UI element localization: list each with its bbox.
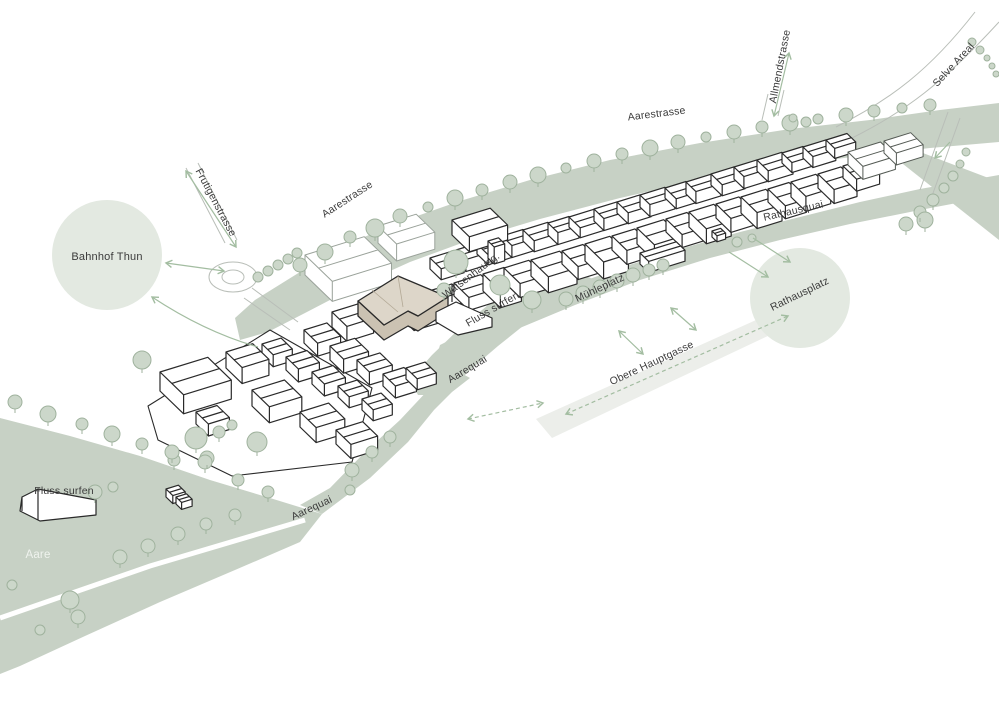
label-aarestrasse-north: Aarestrasse: [627, 105, 686, 124]
tree-icon: [989, 63, 995, 69]
tree-icon: [748, 234, 756, 242]
tree-icon: [113, 550, 127, 564]
tree-icon: [559, 292, 573, 306]
tree-icon: [476, 184, 488, 196]
tree-icon: [626, 268, 640, 282]
tree-icon: [561, 163, 571, 173]
tree-icon: [344, 231, 356, 243]
tree-icon: [789, 114, 797, 122]
tree-icon: [262, 486, 274, 498]
tree-icon: [227, 420, 237, 430]
tree-icon: [104, 426, 120, 442]
tree-icon: [657, 259, 669, 271]
tree-icon: [293, 258, 307, 272]
tree-icon: [7, 580, 17, 590]
tree-icon: [263, 266, 273, 276]
building: [712, 228, 726, 242]
tree-icon: [292, 248, 302, 258]
tree-icon: [393, 209, 407, 223]
tree-icon: [185, 427, 207, 449]
building: [176, 494, 192, 510]
tree-icon: [671, 135, 685, 149]
tree-icon: [523, 291, 541, 309]
tree-icon: [976, 46, 984, 54]
building: [362, 393, 392, 421]
tree-icon: [727, 125, 741, 139]
site-plan-canvas: Bahnhof Thun Frutigenstrasse Aarestrasse…: [0, 0, 999, 703]
tree-icon: [897, 103, 907, 113]
label-bahnhof-thun: Bahnhof Thun: [71, 251, 142, 263]
tree-icon: [384, 431, 396, 443]
tree-icon: [732, 237, 742, 247]
arrow-aarequai-link: [468, 403, 543, 419]
tree-icon: [213, 426, 225, 438]
arrow-muehleplatz-link-2: [671, 308, 696, 330]
tree-icon: [198, 455, 212, 469]
arrow-muehleplatz-link-1: [619, 331, 643, 354]
tree-icon: [345, 485, 355, 495]
arrow-to-rathausplatz-1: [729, 252, 768, 277]
label-aarestrasse-west: Aarestrasse: [320, 179, 375, 221]
tree-icon: [993, 71, 999, 77]
label-allmendstrasse: Allmendstrasse: [767, 29, 793, 104]
roundabout-island: [222, 270, 244, 284]
tree-icon: [133, 351, 151, 369]
tree-icon: [35, 625, 45, 635]
tree-icon: [939, 183, 949, 193]
tree-icon: [273, 260, 283, 270]
tree-icon: [8, 395, 22, 409]
tree-icon: [490, 275, 510, 295]
tree-icon: [141, 539, 155, 553]
tree-icon: [345, 463, 359, 477]
tree-icon: [232, 474, 244, 486]
label-fluss-surfen-west: Fluss surfen: [34, 485, 94, 497]
tree-icon: [868, 105, 880, 117]
tree-icon: [366, 219, 384, 237]
label-aare: Aare: [25, 549, 50, 561]
tree-icon: [229, 509, 241, 521]
tree-icon: [253, 272, 263, 282]
tree-icon: [447, 190, 463, 206]
label-frutigenstrasse: Frutigenstrasse: [193, 166, 239, 238]
tree-icon: [283, 254, 293, 264]
tree-icon: [136, 438, 148, 450]
tree-icon: [962, 148, 970, 156]
tree-icon: [643, 264, 655, 276]
tree-icon: [616, 148, 628, 160]
tree-icon: [165, 445, 179, 459]
tree-icon: [917, 212, 933, 228]
tree-icon: [503, 175, 517, 189]
tree-icon: [366, 446, 378, 458]
tree-icon: [61, 591, 79, 609]
tree-icon: [444, 250, 468, 274]
tree-icon: [839, 108, 853, 122]
tree-icon: [984, 55, 990, 61]
tree-icon: [956, 160, 964, 168]
tree-icon: [200, 518, 212, 530]
tree-icon: [924, 99, 936, 111]
tree-icon: [801, 117, 811, 127]
tree-icon: [587, 154, 601, 168]
site-plan-map: Bahnhof Thun Frutigenstrasse Aarestrasse…: [0, 0, 999, 703]
label-selve-areal: Selve Areal: [931, 41, 978, 90]
tree-icon: [899, 217, 913, 231]
tree-icon: [40, 406, 56, 422]
tree-icon: [71, 610, 85, 624]
tree-icon: [76, 418, 88, 430]
tree-icon: [171, 527, 185, 541]
tree-icon: [813, 114, 823, 124]
tree-icon: [701, 132, 711, 142]
tree-icon: [530, 167, 546, 183]
tree-icon: [317, 244, 333, 260]
tree-icon: [642, 140, 658, 156]
tree-icon: [108, 482, 118, 492]
tree-icon: [948, 171, 958, 181]
tree-icon: [247, 432, 267, 452]
tree-icon: [756, 121, 768, 133]
arrow-obere-hauptgasse: [566, 316, 788, 414]
tree-icon: [927, 194, 939, 206]
tree-icon: [423, 202, 433, 212]
